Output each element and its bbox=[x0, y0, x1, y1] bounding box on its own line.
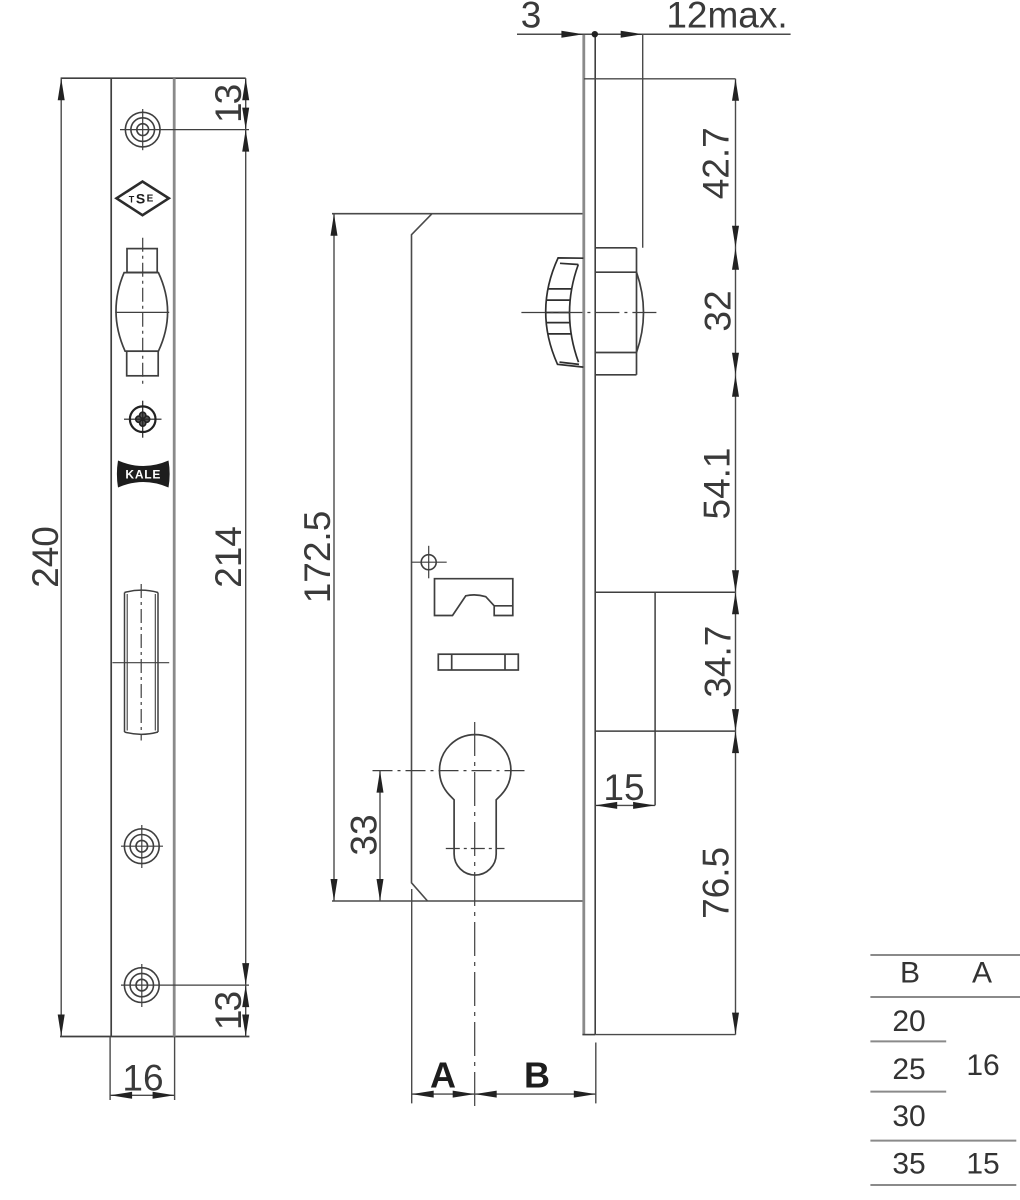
svg-text:16: 16 bbox=[966, 1049, 999, 1082]
svg-text:15: 15 bbox=[603, 767, 644, 808]
svg-text:54.1: 54.1 bbox=[697, 447, 738, 519]
svg-text:16: 16 bbox=[122, 1058, 163, 1099]
svg-text:214: 214 bbox=[208, 526, 249, 588]
svg-text:S: S bbox=[136, 190, 145, 206]
svg-text:20: 20 bbox=[892, 1005, 925, 1038]
svg-text:240: 240 bbox=[25, 526, 66, 588]
svg-text:B: B bbox=[900, 957, 920, 990]
svg-text:30: 30 bbox=[892, 1100, 925, 1133]
svg-text:35: 35 bbox=[892, 1148, 925, 1181]
svg-text:T: T bbox=[129, 195, 135, 205]
svg-text:A: A bbox=[972, 957, 992, 990]
svg-text:B: B bbox=[524, 1055, 550, 1096]
svg-text:E: E bbox=[147, 193, 154, 204]
svg-text:42.7: 42.7 bbox=[696, 127, 737, 199]
svg-text:12max.: 12max. bbox=[666, 0, 787, 36]
svg-text:A: A bbox=[430, 1055, 456, 1096]
svg-text:32: 32 bbox=[698, 290, 739, 331]
svg-text:13: 13 bbox=[208, 85, 249, 123]
svg-text:76.5: 76.5 bbox=[696, 847, 737, 919]
svg-text:25: 25 bbox=[892, 1053, 925, 1086]
svg-text:172.5: 172.5 bbox=[297, 511, 338, 604]
svg-text:KALE: KALE bbox=[125, 467, 161, 481]
svg-text:34.7: 34.7 bbox=[698, 626, 739, 698]
svg-text:3: 3 bbox=[521, 0, 542, 36]
svg-text:33: 33 bbox=[344, 814, 385, 855]
svg-text:13: 13 bbox=[208, 993, 249, 1031]
svg-text:15: 15 bbox=[966, 1148, 999, 1181]
